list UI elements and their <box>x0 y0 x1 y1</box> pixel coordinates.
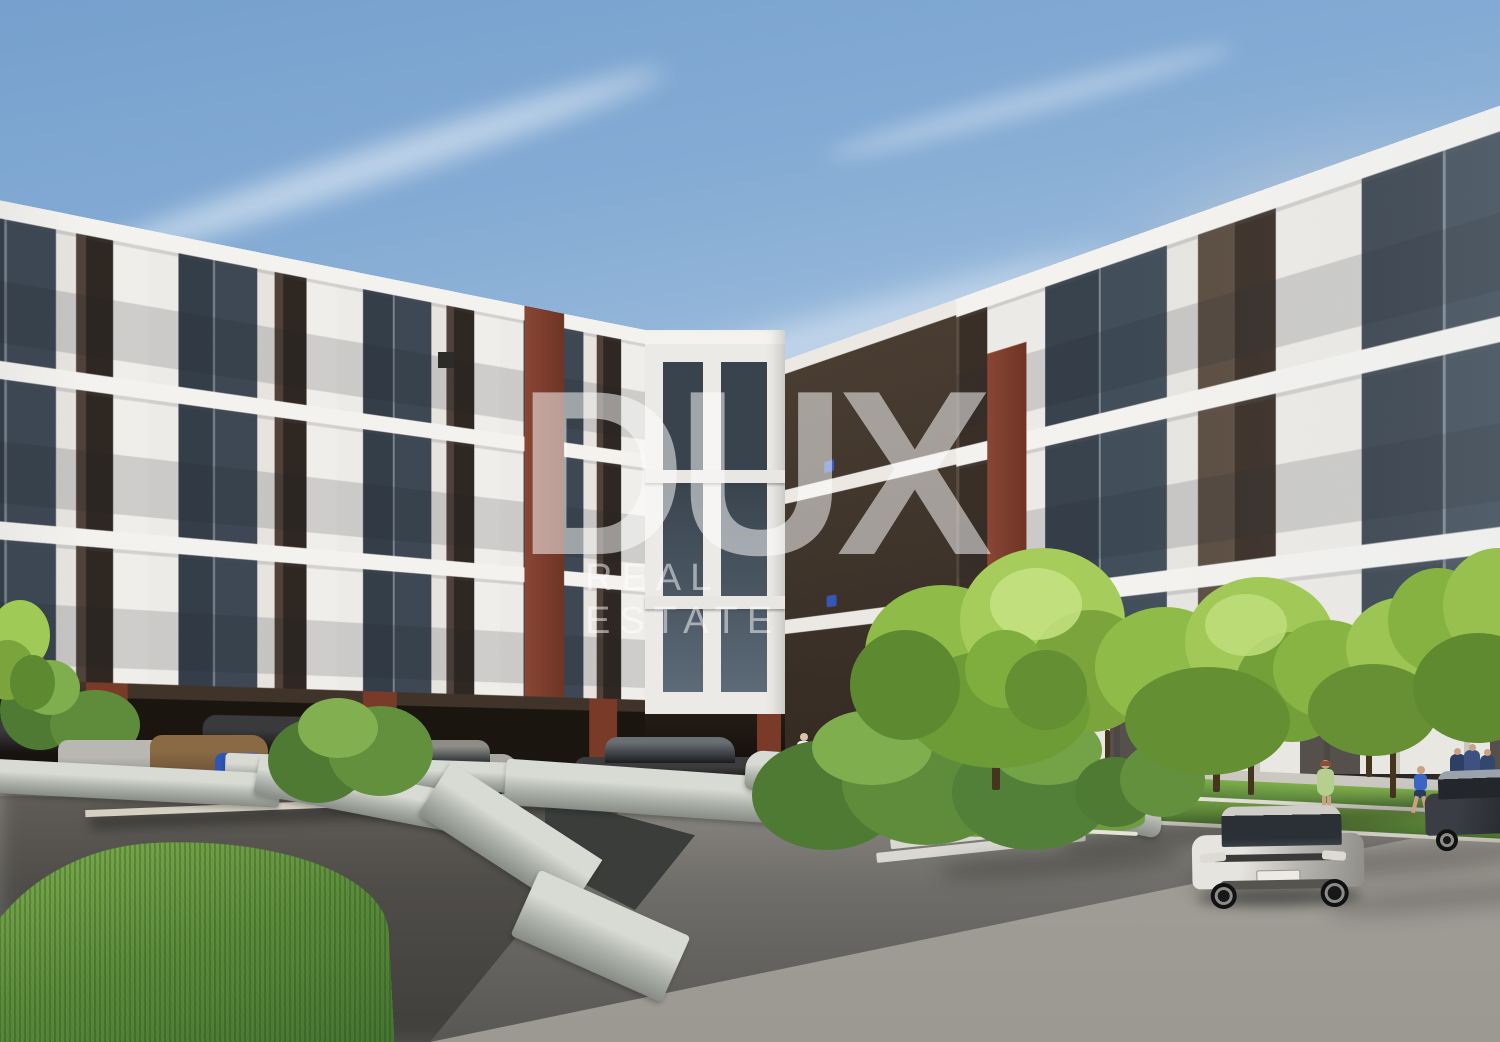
tree <box>960 620 1090 770</box>
dark-car <box>1424 768 1500 854</box>
architectural-render: DUX REAL ESTATE <box>0 0 1500 1042</box>
car-wheel <box>1320 879 1348 907</box>
watermark-logo: DUX <box>430 368 1070 578</box>
tree-canopy-blob <box>1125 667 1290 775</box>
car-headlight <box>1322 850 1347 861</box>
tree <box>1388 548 1500 763</box>
landscape-bush <box>258 698 438 810</box>
left-edge-tree <box>0 600 60 740</box>
tree-canopy-blob <box>1005 650 1087 730</box>
watermark-subtitle: REAL ESTATE <box>585 576 915 624</box>
roof-vent <box>438 352 454 368</box>
tree-canopy-blob <box>850 630 960 740</box>
car-cabin <box>1221 805 1342 847</box>
silver-car <box>1191 799 1365 912</box>
